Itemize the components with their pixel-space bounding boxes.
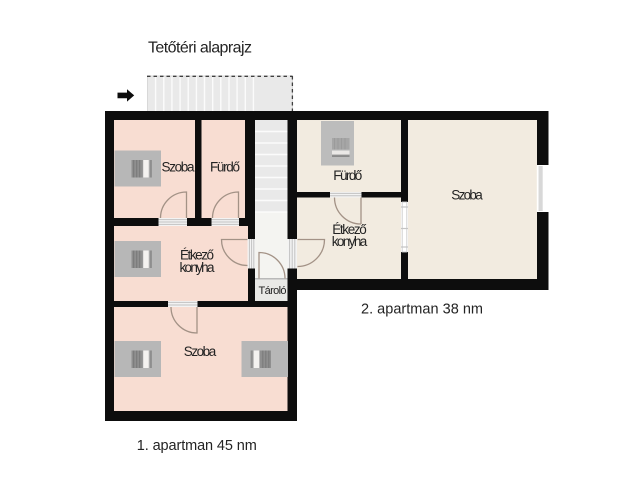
svg-text:konyha: konyha <box>180 260 215 275</box>
svg-text:Szoba: Szoba <box>451 188 483 203</box>
svg-text:konyha: konyha <box>332 234 368 249</box>
svg-text:Tetőtéri alaprajz: Tetőtéri alaprajz <box>148 40 252 57</box>
svg-text:Szoba: Szoba <box>162 160 195 175</box>
svg-text:Szoba: Szoba <box>184 344 217 359</box>
svg-text:1. apartman 45 nm: 1. apartman 45 nm <box>137 438 257 454</box>
svg-text:2. apartman 38 nm: 2. apartman 38 nm <box>361 302 483 318</box>
svg-text:Tároló: Tároló <box>259 285 287 297</box>
svg-text:Fürdő: Fürdő <box>210 160 240 175</box>
svg-text:Fürdő: Fürdő <box>333 168 362 183</box>
